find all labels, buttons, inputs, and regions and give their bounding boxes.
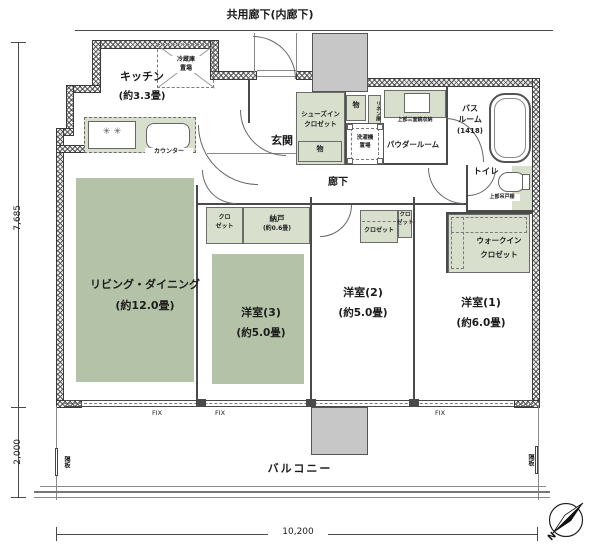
corridor-boundary-line bbox=[75, 30, 553, 31]
washer-corner bbox=[347, 124, 353, 130]
storage-box-label: 物 bbox=[312, 145, 328, 154]
dim-label-10200: 10,200 bbox=[268, 527, 328, 539]
balcony-partition bbox=[535, 446, 538, 474]
sic-label: クロゼット bbox=[296, 120, 345, 128]
wall-segment bbox=[532, 78, 540, 408]
bathtub-inner bbox=[494, 98, 526, 158]
storage-room-label: 納戸 bbox=[254, 214, 300, 224]
window-line bbox=[64, 406, 533, 407]
wic-label: クロゼット bbox=[472, 250, 526, 260]
refrigerator-label: 冷蔵庫 bbox=[163, 56, 209, 64]
window-pier bbox=[196, 399, 206, 407]
western2-closet-narrow-label: ゼット bbox=[397, 220, 413, 227]
pipe-space-box bbox=[312, 33, 368, 92]
wall-line bbox=[310, 197, 312, 402]
western3-size: (約5.0畳) bbox=[220, 327, 302, 341]
western1-size: (約6.0畳) bbox=[438, 317, 524, 331]
living-dining-size: (約12.0畳) bbox=[80, 299, 210, 313]
common-corridor-label: 共用廊下(内廊下) bbox=[200, 8, 340, 22]
dim-tick bbox=[11, 497, 26, 498]
toilet-shelf-label: 上部吊戸棚 bbox=[484, 194, 520, 201]
wall-segment bbox=[56, 128, 64, 408]
window-pier bbox=[306, 399, 316, 407]
western2-size: (約5.0畳) bbox=[322, 307, 404, 321]
bathroom-label: バス bbox=[452, 104, 488, 114]
closet-hanger-dash bbox=[362, 221, 396, 222]
washer-label: 置場 bbox=[354, 143, 376, 150]
counter-label: カウンター bbox=[145, 148, 193, 156]
fix-window-label: FIX bbox=[428, 409, 452, 417]
western2-door-arc bbox=[320, 205, 352, 237]
balcony-partition bbox=[55, 448, 58, 476]
front-door-arc bbox=[253, 36, 296, 79]
western1-door-arc bbox=[428, 168, 464, 204]
north-compass: N bbox=[544, 498, 588, 542]
kitchen-size: (約3.3畳) bbox=[96, 90, 188, 103]
linen-cabinet-label: リネン庫 bbox=[369, 97, 380, 125]
balcony-partition-label: 隔板 bbox=[524, 448, 533, 472]
dim-label-2000: 2,000 bbox=[13, 433, 25, 471]
bathroom-size: (1418) bbox=[452, 127, 488, 136]
balcony-front-line bbox=[34, 491, 550, 493]
entrance-label: 玄関 bbox=[256, 134, 308, 148]
wall-line bbox=[413, 197, 415, 402]
kitchen-label: キッチン bbox=[96, 70, 188, 84]
kitchen-sink bbox=[146, 123, 190, 149]
dim-tick bbox=[537, 527, 538, 541]
western3-door-arc bbox=[202, 170, 236, 204]
dim-tick bbox=[11, 42, 26, 43]
powder-room-label: パウダールーム bbox=[380, 140, 446, 150]
sic-label: シューズイン bbox=[296, 110, 345, 118]
balcony-partition-label: 隔板 bbox=[60, 450, 69, 474]
washer-corner bbox=[347, 158, 353, 164]
alcove-line bbox=[296, 33, 297, 73]
dim-label-7685: 7,685 bbox=[13, 199, 25, 237]
balcony-label: バルコニー bbox=[248, 462, 352, 476]
wic-hanger-dash bbox=[451, 217, 464, 269]
mirror-cabinet-label: 上部三面鏡収納 bbox=[386, 117, 444, 124]
storage-box-label: 物 bbox=[348, 101, 364, 110]
window-dash bbox=[64, 403, 533, 404]
powder-sink bbox=[404, 93, 430, 113]
western2-label: 洋室(2) bbox=[322, 286, 404, 300]
western3-label: 洋室(3) bbox=[220, 306, 302, 320]
toilet-label: トイレ bbox=[464, 167, 508, 178]
washer-corner bbox=[377, 124, 383, 130]
balcony-front-line bbox=[40, 486, 546, 487]
wall-segment bbox=[366, 78, 540, 87]
storage-room-size: (約0.6畳) bbox=[250, 225, 304, 233]
western3-closet-label: クロ bbox=[209, 214, 240, 222]
bathroom-label: ルーム bbox=[452, 115, 488, 125]
living-dining-label: リビング・ダイニング bbox=[80, 278, 210, 292]
fix-window-label: FIX bbox=[145, 409, 169, 417]
wall-segment bbox=[210, 71, 257, 80]
balcony-shaft-box bbox=[311, 407, 368, 455]
western3-closet-label: ゼット bbox=[209, 223, 240, 231]
hallway-label: 廊下 bbox=[312, 176, 364, 189]
window-pier bbox=[409, 399, 419, 407]
washer-label: 洗濯機 bbox=[352, 135, 378, 142]
balcony-front-line bbox=[34, 497, 550, 498]
washer-corner bbox=[377, 158, 383, 164]
toilet-tank bbox=[522, 174, 530, 190]
fix-window-label: FIX bbox=[208, 409, 232, 417]
western1-label: 洋室(1) bbox=[438, 296, 524, 310]
western2-closet-label: クロゼット bbox=[359, 227, 399, 235]
window-line bbox=[64, 400, 533, 401]
wic-label: ウォークイン bbox=[468, 236, 530, 246]
dim-tick bbox=[56, 527, 57, 541]
western2-closet-narrow-label: クロ bbox=[397, 212, 413, 219]
wall-line bbox=[196, 185, 198, 402]
stove-burners: ✳ ✳ bbox=[88, 127, 136, 139]
floor-plan: 共用廊下(内廊下) 7,685 2,000 10,200 bbox=[0, 0, 600, 554]
